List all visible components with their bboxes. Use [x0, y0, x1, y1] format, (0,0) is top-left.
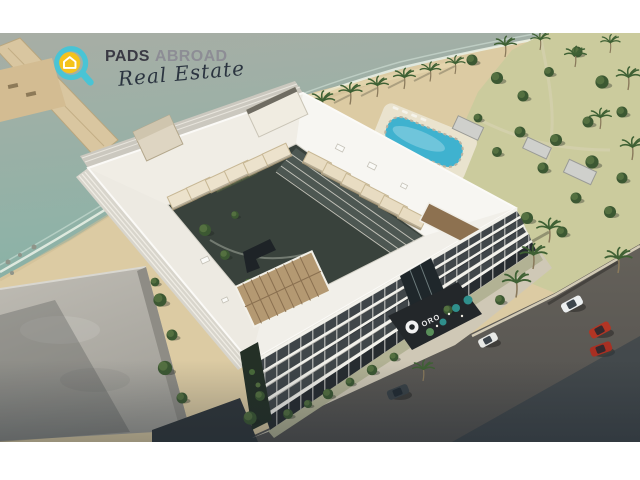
letterbox-top	[0, 0, 640, 33]
logo-text: PADSABROAD Real Estate	[105, 42, 244, 91]
letterbox-bottom	[0, 442, 640, 480]
bottom-haze	[0, 360, 640, 442]
pads-abroad-logo: PADSABROAD Real Estate	[52, 42, 244, 91]
magnifier-house-icon	[52, 42, 98, 90]
screenshot: ORO	[0, 0, 640, 480]
brand-primary: PADS	[105, 48, 150, 65]
